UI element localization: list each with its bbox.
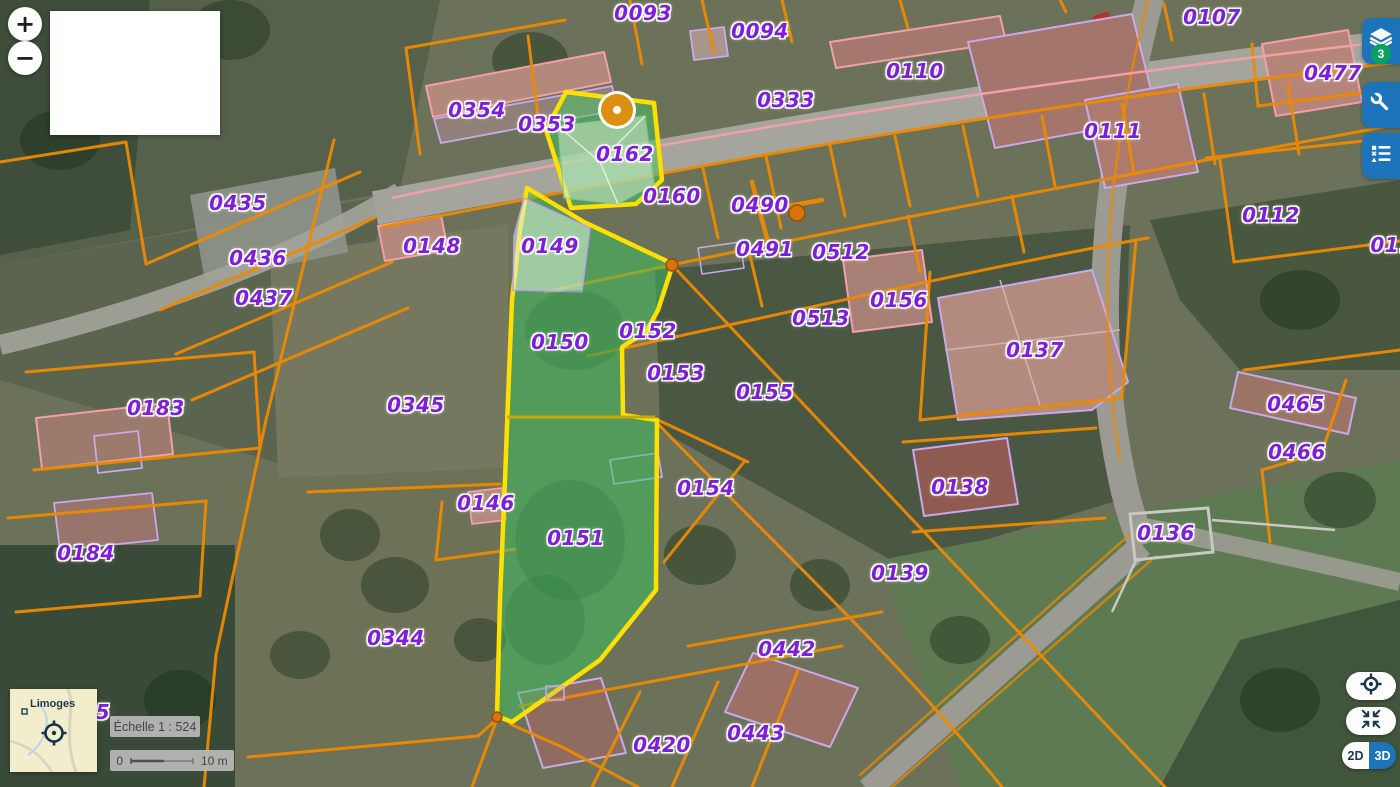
mode-2d-button[interactable]: 2D (1342, 742, 1369, 769)
mode-toggle[interactable]: 2D 3D (1342, 742, 1396, 769)
blank-info-panel (50, 11, 220, 135)
parcel-label-0150[interactable]: 0150 (531, 330, 589, 354)
parcel-label-0442[interactable]: 0442 (758, 637, 816, 661)
parcel-label-011[interactable]: 011 (1370, 233, 1400, 257)
map-canvas[interactable]: + − 3 (0, 0, 1400, 787)
parcel-label-0151[interactable]: 0151 (547, 526, 605, 550)
parcel-label-0354[interactable]: 0354 (448, 98, 506, 122)
scalebar-box: 0 10 m (110, 750, 234, 771)
scale-ratio-text: Échelle 1 : 524 (114, 720, 197, 734)
scalebar-max: 10 m (201, 754, 228, 768)
minimap-city-label: Limoges (30, 698, 75, 710)
wrench-icon (1369, 91, 1393, 120)
vertex-point-marker[interactable] (666, 259, 678, 271)
parcel-label-0353[interactable]: 0353 (518, 112, 576, 136)
parcel-label-0112[interactable]: 0112 (1242, 203, 1300, 227)
parcel-label-0093[interactable]: 0093 (614, 1, 672, 25)
parcel-label-0154[interactable]: 0154 (677, 476, 735, 500)
parcel-label-0155[interactable]: 0155 (736, 380, 794, 404)
parcel-label-0184[interactable]: 0184 (57, 541, 115, 565)
parcel-label-0333[interactable]: 0333 (757, 88, 815, 112)
parcel-label-0345[interactable]: 0345 (387, 393, 445, 417)
locate-button[interactable] (1346, 672, 1396, 700)
target-icon (1358, 671, 1384, 702)
vertex-point-marker[interactable] (492, 712, 502, 722)
tools-button[interactable] (1362, 82, 1400, 128)
parcel-label-0107[interactable]: 0107 (1183, 5, 1241, 29)
parcel-label-0137[interactable]: 0137 (1006, 338, 1064, 362)
parcel-label-0160[interactable]: 0160 (643, 184, 701, 208)
scalebar-line (130, 756, 194, 766)
zoom-in-button[interactable]: + (8, 7, 42, 41)
zoom-out-button[interactable]: − (8, 41, 42, 75)
parcel-label-0138[interactable]: 0138 (931, 475, 989, 499)
parcel-label-0136[interactable]: 0136 (1137, 521, 1195, 545)
parcel-label-0094[interactable]: 0094 (731, 19, 789, 43)
parcel-label-0344[interactable]: 0344 (367, 626, 425, 650)
parcel-label-0436[interactable]: 0436 (229, 246, 287, 270)
layer-list-icon (1369, 142, 1393, 171)
collapse-button[interactable] (1346, 707, 1396, 735)
layers-count-badge: 3 (1371, 44, 1391, 64)
parcel-label-5[interactable]: 5 (96, 700, 110, 724)
parcel-label-0148[interactable]: 0148 (403, 234, 461, 258)
layers-button[interactable]: 3 (1362, 18, 1400, 64)
parcel-label-0110[interactable]: 0110 (886, 59, 944, 83)
scale-ratio-box: Échelle 1 : 524 (110, 716, 200, 737)
selected-point-marker[interactable] (613, 106, 621, 114)
layer-list-button[interactable] (1362, 133, 1400, 179)
minimap-crosshair-icon (42, 721, 67, 746)
parcel-label-0490[interactable]: 0490 (731, 193, 789, 217)
parcel-label-0512[interactable]: 0512 (812, 240, 870, 264)
parcel-label-0183[interactable]: 0183 (127, 396, 185, 420)
overview-minimap[interactable]: Limoges (10, 689, 97, 772)
parcel-label-0435[interactable]: 0435 (209, 191, 267, 215)
parcel-label-0420[interactable]: 0420 (633, 733, 691, 757)
mode-3d-button[interactable]: 3D (1369, 742, 1396, 769)
parcel-label-0111[interactable]: 0111 (1084, 119, 1142, 143)
parcel-label-0162[interactable]: 0162 (596, 142, 654, 166)
parcel-label-0153[interactable]: 0153 (647, 361, 705, 385)
parcel-label-0491[interactable]: 0491 (736, 237, 794, 261)
parcel-label-0477[interactable]: 0477 (1304, 61, 1362, 85)
scalebar-min: 0 (116, 754, 123, 768)
vertex-point-marker[interactable] (789, 205, 805, 221)
parcel-label-0146[interactable]: 0146 (457, 491, 515, 515)
collapse-arrows-icon (1359, 707, 1383, 736)
parcel-label-0437[interactable]: 0437 (235, 286, 293, 310)
parcel-label-0513[interactable]: 0513 (792, 306, 850, 330)
parcel-label-0152[interactable]: 0152 (619, 319, 677, 343)
small-building-outline (546, 686, 564, 700)
parcel-label-0139[interactable]: 0139 (871, 561, 929, 585)
parcel-label-0443[interactable]: 0443 (727, 721, 785, 745)
parcel-label-0156[interactable]: 0156 (870, 288, 928, 312)
parcel-label-0149[interactable]: 0149 (521, 234, 579, 258)
parcel-label-0465[interactable]: 0465 (1267, 392, 1325, 416)
parcel-label-0466[interactable]: 0466 (1268, 440, 1326, 464)
